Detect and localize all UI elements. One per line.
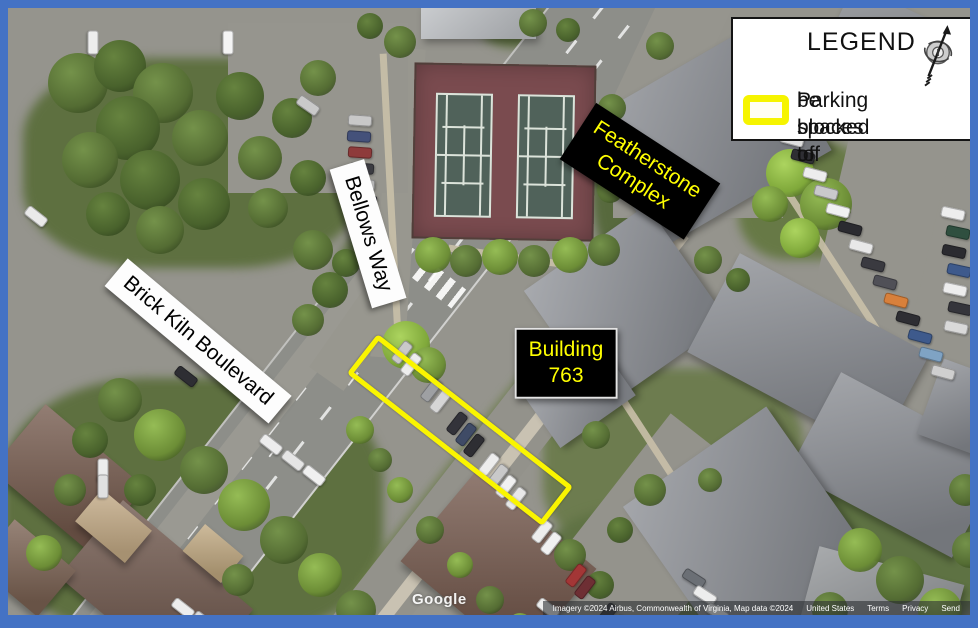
attribution-link-privacy[interactable]: Privacy	[902, 604, 928, 613]
tree	[780, 218, 820, 258]
google-watermark: Google	[412, 591, 467, 608]
tree	[694, 246, 722, 274]
tree	[292, 304, 324, 336]
car	[347, 130, 372, 143]
tree	[588, 234, 620, 266]
tree	[298, 553, 342, 597]
car	[223, 30, 234, 54]
legend-box: LEGEND Parking spaces to be blocked off	[731, 17, 970, 141]
tree	[293, 230, 333, 270]
tree	[120, 150, 180, 210]
attribution-link-terms[interactable]: Terms	[867, 604, 889, 613]
tree	[222, 564, 254, 596]
legend-item-line2: be blocked off	[797, 87, 869, 168]
car	[348, 114, 373, 127]
tree	[136, 206, 184, 254]
tree	[582, 421, 610, 449]
tree	[238, 136, 282, 180]
attribution-imagery-text: Imagery ©2024 Airbus, Commonwealth of Vi…	[553, 604, 794, 613]
tree	[634, 474, 666, 506]
attribution-bar: Imagery ©2024 Airbus, Commonwealth of Vi…	[543, 601, 970, 615]
tree	[646, 32, 674, 60]
tree	[476, 586, 504, 614]
tree	[72, 422, 108, 458]
tree	[26, 535, 62, 571]
tree	[607, 517, 633, 543]
legend-title: LEGEND	[807, 28, 916, 57]
tree	[248, 188, 288, 228]
tree	[134, 409, 186, 461]
tree	[124, 474, 156, 506]
car	[98, 474, 109, 498]
tree	[387, 477, 413, 503]
tree	[726, 268, 750, 292]
tree	[482, 239, 518, 275]
tree	[216, 72, 264, 120]
tree	[357, 13, 383, 39]
north-arrow-compass-icon	[914, 24, 962, 88]
tree	[556, 18, 580, 42]
tree	[98, 378, 142, 422]
label-building-763-line1: Building	[529, 337, 604, 363]
tree	[300, 60, 336, 96]
tree	[290, 160, 326, 196]
attribution-link-send-feedback[interactable]: Send	[941, 604, 960, 613]
tree	[86, 192, 130, 236]
tree	[260, 516, 308, 564]
tree	[415, 237, 451, 273]
aerial-map: ↰ Bellows Way Brick Kiln Boulevard Feath…	[8, 8, 970, 615]
tree	[346, 416, 374, 444]
tree	[450, 245, 482, 277]
tree	[416, 516, 444, 544]
tree	[752, 186, 788, 222]
tree	[54, 474, 86, 506]
attribution-link-region[interactable]: United States	[806, 604, 854, 613]
tree	[698, 468, 722, 492]
car	[88, 30, 99, 54]
tree	[519, 9, 547, 37]
tree	[552, 237, 588, 273]
tree	[518, 245, 550, 277]
legend-swatch	[743, 95, 789, 125]
label-building-763-line2: 763	[529, 363, 604, 389]
tree	[368, 448, 392, 472]
tree	[312, 272, 348, 308]
tree	[180, 446, 228, 494]
tree	[218, 479, 270, 531]
tree	[838, 528, 882, 572]
tree	[178, 178, 230, 230]
car	[348, 146, 373, 159]
label-building-763: Building 763	[515, 328, 618, 399]
tree	[384, 26, 416, 58]
slide-frame: ↰ Bellows Way Brick Kiln Boulevard Feath…	[0, 0, 978, 628]
tree	[876, 556, 924, 604]
tree	[62, 132, 118, 188]
tennis-court	[434, 93, 493, 218]
tree	[447, 552, 473, 578]
tree	[172, 110, 228, 166]
